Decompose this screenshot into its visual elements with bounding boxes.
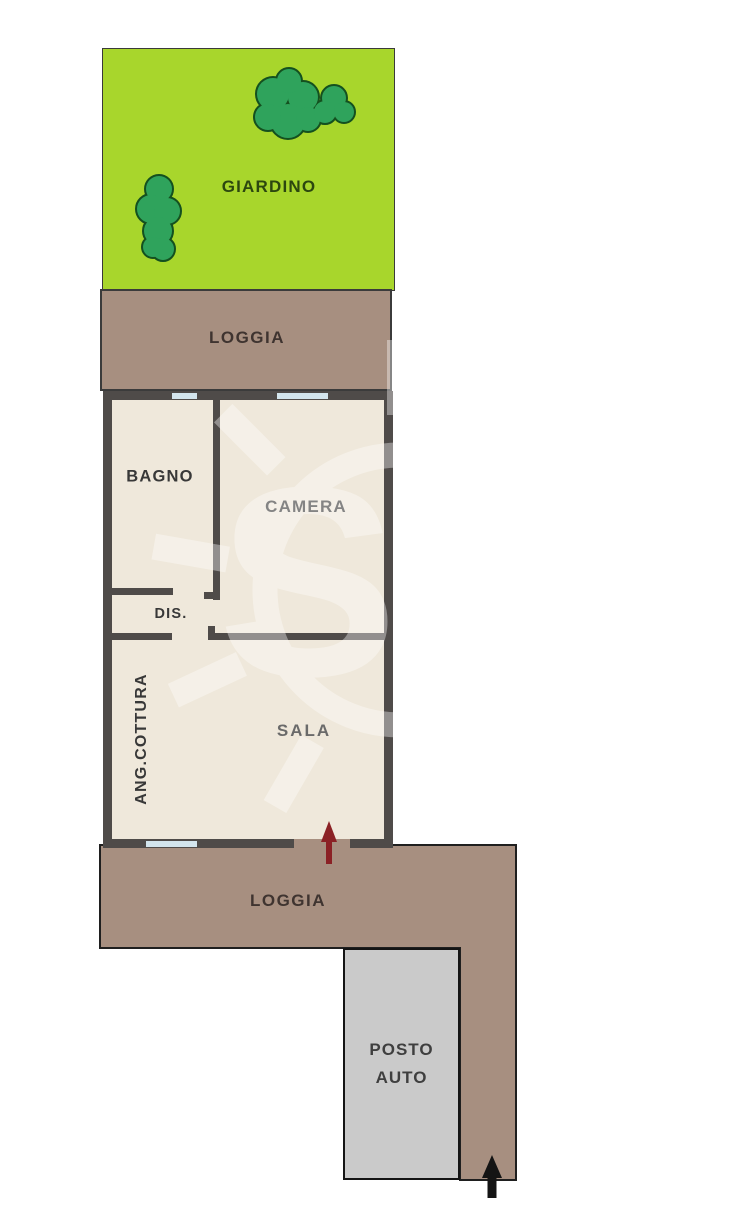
- wall-east: [384, 391, 393, 848]
- loggia-top-label: LOGGIA: [209, 328, 285, 348]
- bagno-label: BAGNO: [126, 468, 193, 487]
- garden-area: GIARDINO: [102, 48, 395, 291]
- carport-area: POSTO AUTO: [343, 948, 460, 1180]
- loggia-bottom-label: LOGGIA: [250, 891, 326, 911]
- wall-camera-sala: [208, 633, 384, 640]
- camera-label: CAMERA: [265, 497, 347, 517]
- wall-bagno-south: [112, 588, 173, 595]
- door-jamb-dis: [208, 626, 215, 633]
- disimpegno-label: DIS.: [155, 606, 188, 622]
- trees-illustration: [103, 49, 394, 290]
- wall-dis-sala-left: [112, 633, 172, 640]
- loggia-top-area: LOGGIA: [100, 289, 392, 391]
- driveway-arrow-icon: [481, 1150, 503, 1200]
- window-camera: [277, 393, 328, 399]
- window-bagno: [172, 393, 197, 399]
- entrance-arrow-icon: [318, 818, 340, 868]
- wall-bagno-camera: [213, 400, 220, 600]
- door-jamb-bagno: [204, 592, 213, 599]
- window-sala: [146, 841, 197, 847]
- wall-west: [103, 391, 112, 848]
- sala-label: SALA: [277, 721, 331, 741]
- apartment-floorplan: BAGNO CAMERA DIS. ANG.COTTURA SALA: [103, 391, 393, 848]
- garden-label: GIARDINO: [222, 177, 317, 197]
- ang-cottura-label: ANG.COTTURA: [133, 673, 151, 804]
- carport-label: POSTO AUTO: [357, 1036, 447, 1092]
- wall-north: [103, 391, 393, 400]
